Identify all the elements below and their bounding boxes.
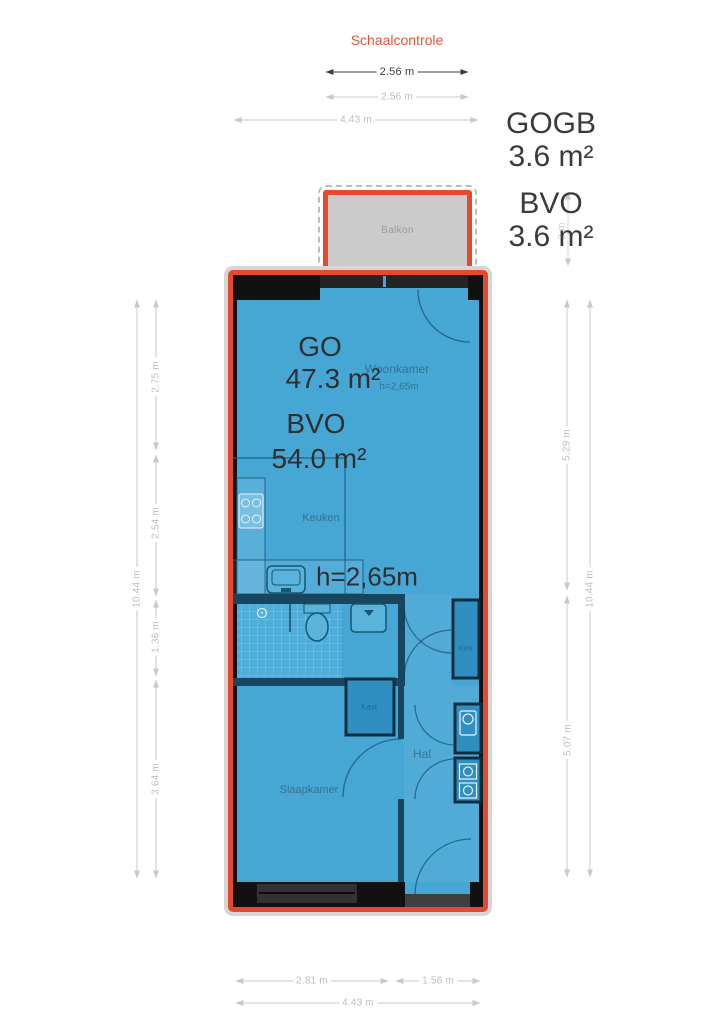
wall-top-left xyxy=(233,275,320,300)
room-label-hal: Hal xyxy=(413,747,431,761)
kitchen-sink-icon xyxy=(267,566,305,593)
balcony-bvo-value: 3.6 m² xyxy=(481,220,621,253)
room-label-keuken: Keuken xyxy=(302,512,339,524)
dim-right-total: 10.44 m xyxy=(585,567,596,611)
floorplan-page: Schaalcontrole 2.56 m 2.56 m 4.43 m GOGB… xyxy=(0,0,724,1024)
toilet-icon xyxy=(304,604,330,641)
scale-dim-1: 2.56 m xyxy=(377,66,418,78)
scale-check-title: Schaalcontrole xyxy=(351,32,444,48)
gogb-value: 3.6 m² xyxy=(481,140,621,173)
balcony-area-block: GOGB 3.6 m² BVO 3.6 m² xyxy=(481,107,621,253)
bvo-label: BVO xyxy=(286,408,345,440)
stove-icon xyxy=(239,494,263,528)
dim-left-4: 3.64 m xyxy=(151,760,162,798)
bedroom-wall-upper xyxy=(398,686,404,739)
bathroom-wall-top xyxy=(233,594,402,604)
balcony-label: Balkon xyxy=(381,225,414,236)
scale-dim-3: 4.43 m xyxy=(337,115,375,126)
dim-left-total: 10.44 m xyxy=(132,567,143,611)
go-label: GO xyxy=(298,331,342,363)
balcony-bvo-label: BVO xyxy=(481,187,621,220)
dim-right-1: 5.29 m xyxy=(562,426,573,464)
dim-left-3: 1.36 m xyxy=(151,618,162,656)
room-label-kast-right: Kast xyxy=(459,646,473,653)
bedroom-wall-lower xyxy=(398,799,404,882)
balcony: Balkon xyxy=(323,190,472,271)
bvo-value: 54.0 m² xyxy=(272,443,367,475)
dim-bottom-total: 4.43 m xyxy=(339,998,377,1009)
balcony-glazing xyxy=(320,275,470,288)
dim-left-1: 2.75 m xyxy=(151,358,162,396)
ceiling-height-label: h=2,65m xyxy=(316,562,418,593)
dim-bottom-1: 2.81 m xyxy=(293,976,331,987)
room-label-woonkamer-height: h=2,65m xyxy=(379,382,418,393)
hall-floor xyxy=(404,594,452,686)
room-label-kast-middle: Kast xyxy=(361,703,377,712)
dim-left-2: 2.54 m xyxy=(151,504,162,542)
glazing-mullion xyxy=(383,276,386,287)
entrance-threshold xyxy=(405,894,470,907)
wall-right xyxy=(479,275,483,907)
scale-dim-2: 2.56 m xyxy=(378,92,416,103)
dim-bottom-2: 1.56 m xyxy=(419,976,457,987)
basin-icon xyxy=(351,604,386,632)
room-label-slaapkamer: Slaapkamer xyxy=(280,784,339,796)
room-label-woonkamer: Woonkamer xyxy=(365,362,429,376)
dim-right-2: 5.07 m xyxy=(563,721,574,759)
closet-right xyxy=(453,600,479,678)
gogb-label: GOGB xyxy=(481,107,621,140)
